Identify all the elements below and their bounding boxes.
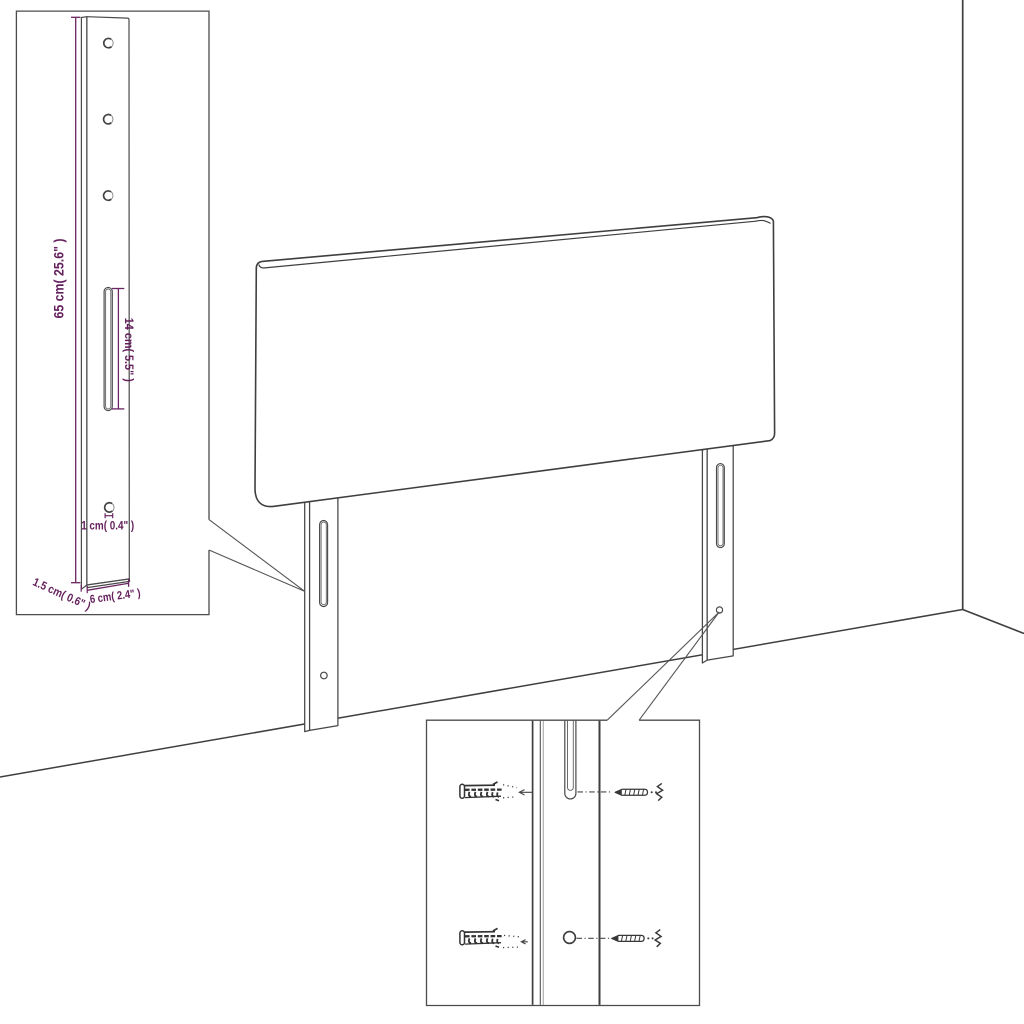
svg-text:1 cm( 0.4" ): 1 cm( 0.4" )	[81, 520, 134, 533]
svg-text:65 cm( 25.6" ): 65 cm( 25.6" )	[51, 239, 66, 319]
svg-text:14 cm( 5.5" ): 14 cm( 5.5" )	[122, 318, 136, 382]
